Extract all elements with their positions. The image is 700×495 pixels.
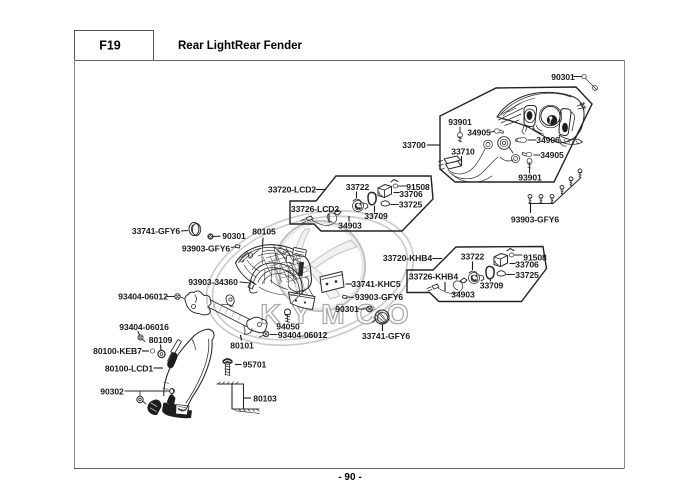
svg-text:33741-GFY6: 33741-GFY6 <box>132 226 181 236</box>
svg-text:33725: 33725 <box>399 200 423 210</box>
svg-text:33726-LCD2: 33726-LCD2 <box>291 204 340 214</box>
svg-text:33710: 33710 <box>451 147 475 157</box>
svg-text:90302: 90302 <box>100 387 124 397</box>
svg-text:33741-GFY6: 33741-GFY6 <box>362 331 411 341</box>
svg-text:80109: 80109 <box>149 335 173 345</box>
svg-text:- 90 -: - 90 - <box>338 472 361 483</box>
svg-text:33741-KHC5: 33741-KHC5 <box>351 279 400 289</box>
svg-text:33720-KHB4: 33720-KHB4 <box>383 253 432 263</box>
svg-text:33709: 33709 <box>480 281 504 291</box>
svg-text:80101: 80101 <box>230 341 254 351</box>
svg-text:34906: 34906 <box>536 135 560 145</box>
svg-text:95701: 95701 <box>243 360 267 370</box>
svg-text:33722: 33722 <box>346 182 370 192</box>
svg-text:90301: 90301 <box>335 304 359 314</box>
svg-text:33706: 33706 <box>399 189 423 199</box>
svg-text:93404-06016: 93404-06016 <box>119 322 169 332</box>
svg-text:34905: 34905 <box>467 128 491 138</box>
svg-text:33700: 33700 <box>402 140 426 150</box>
svg-text:F19: F19 <box>99 39 121 53</box>
svg-text:80100-KEB7: 80100-KEB7 <box>93 346 142 356</box>
svg-text:90301: 90301 <box>222 231 246 241</box>
svg-text:Rear LightRear Fender: Rear LightRear Fender <box>178 40 302 52</box>
svg-text:33709: 33709 <box>364 211 388 221</box>
svg-text:93901: 93901 <box>448 117 472 127</box>
svg-text:90301: 90301 <box>551 72 575 82</box>
svg-text:33725: 33725 <box>515 270 539 280</box>
svg-text:34905: 34905 <box>540 150 564 160</box>
svg-text:93903-GFY6: 93903-GFY6 <box>182 244 231 254</box>
svg-text:93903-GFY6: 93903-GFY6 <box>355 292 404 302</box>
svg-text:34903: 34903 <box>338 221 362 231</box>
svg-text:33722: 33722 <box>461 252 485 262</box>
svg-text:80103: 80103 <box>253 394 277 404</box>
svg-text:93903-GFY6: 93903-GFY6 <box>511 215 560 225</box>
svg-text:80105: 80105 <box>252 227 276 237</box>
svg-text:93404-06012: 93404-06012 <box>278 330 328 340</box>
svg-text:33726-KHB4: 33726-KHB4 <box>409 272 458 282</box>
svg-text:33706: 33706 <box>515 260 539 270</box>
svg-text:93404-06012: 93404-06012 <box>118 292 168 302</box>
svg-text:93901: 93901 <box>518 173 542 183</box>
svg-text:93903-34360: 93903-34360 <box>188 277 238 287</box>
svg-text:34903: 34903 <box>451 290 475 300</box>
svg-text:80100-LCD1: 80100-LCD1 <box>105 364 154 374</box>
svg-text:33720-LCD2: 33720-LCD2 <box>268 185 317 195</box>
